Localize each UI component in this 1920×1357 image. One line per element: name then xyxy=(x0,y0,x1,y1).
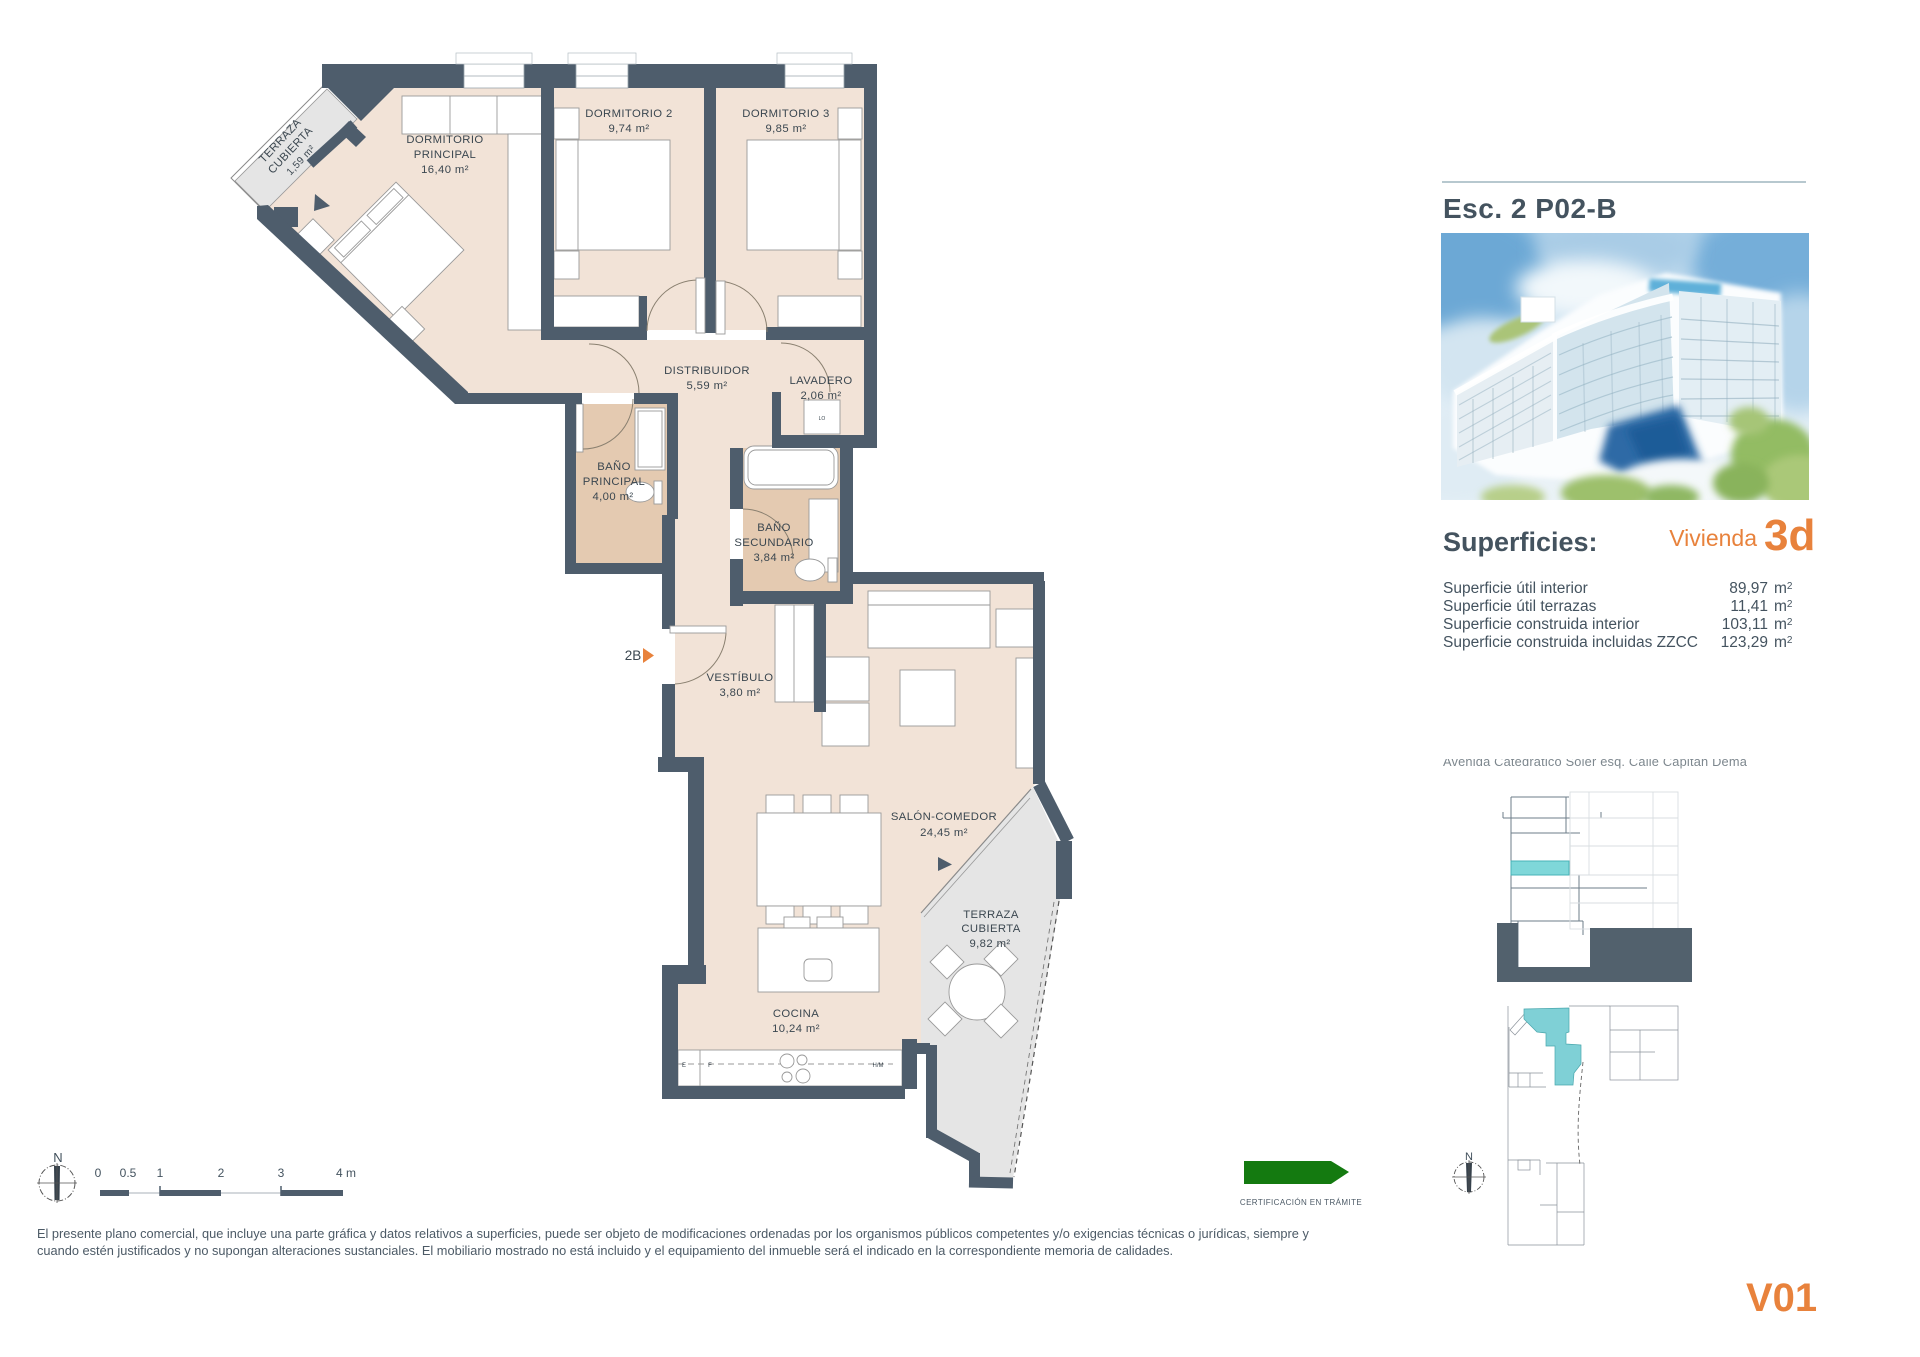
svg-text:TERRAZA: TERRAZA xyxy=(963,909,1019,921)
svg-text:9,74 m²: 9,74 m² xyxy=(608,123,649,135)
svg-text:H/M: H/M xyxy=(873,1063,884,1069)
svg-text:DISTRIBUIDOR: DISTRIBUIDOR xyxy=(664,365,750,377)
svg-text:Superficie construida incluida: Superficie construida incluidas ZZCC xyxy=(1443,634,1698,651)
svg-text:4,00 m²: 4,00 m² xyxy=(592,491,633,503)
svg-text:2B: 2B xyxy=(625,648,642,663)
svg-text:F: F xyxy=(708,1063,712,1069)
svg-text:DORMITORIO: DORMITORIO xyxy=(406,134,483,146)
svg-text:Superficie construida interior: Superficie construida interior xyxy=(1443,616,1639,633)
svg-text:BAÑO: BAÑO xyxy=(757,521,791,534)
svg-text:2: 2 xyxy=(218,1166,225,1180)
svg-text:3d: 3d xyxy=(1764,511,1815,560)
svg-text:10,24 m²: 10,24 m² xyxy=(772,1023,820,1035)
svg-text:0.5: 0.5 xyxy=(120,1166,137,1180)
svg-text:3,80 m²: 3,80 m² xyxy=(719,687,760,699)
svg-text:SALÓN-COMEDOR: SALÓN-COMEDOR xyxy=(891,810,997,823)
svg-text:DORMITORIO 3: DORMITORIO 3 xyxy=(742,108,829,120)
svg-text:PRINCIPAL: PRINCIPAL xyxy=(414,149,476,161)
svg-text:89,97: 89,97 xyxy=(1729,580,1768,597)
svg-text:11,41: 11,41 xyxy=(1730,598,1768,615)
svg-text:16,40 m²: 16,40 m² xyxy=(421,164,469,176)
svg-text:El presente plano comercial, q: El presente plano comercial, que incluye… xyxy=(37,1226,1309,1241)
svg-text:2,06 m²: 2,06 m² xyxy=(800,390,841,402)
svg-text:9,85 m²: 9,85 m² xyxy=(765,123,806,135)
svg-text:Superficie útil interior: Superficie útil interior xyxy=(1443,580,1588,597)
svg-text:VESTÍBULO: VESTÍBULO xyxy=(706,671,773,684)
svg-text:24,45 m²: 24,45 m² xyxy=(920,827,968,839)
svg-text:COCINA: COCINA xyxy=(773,1008,819,1020)
svg-text:Vivienda: Vivienda xyxy=(1669,525,1757,551)
svg-text:V01: V01 xyxy=(1746,1276,1817,1320)
svg-text:Esc. 2 P02-B: Esc. 2 P02-B xyxy=(1443,193,1617,224)
svg-text:LO: LO xyxy=(819,416,826,422)
svg-text:N: N xyxy=(53,1150,62,1165)
svg-text:Superficies:: Superficies: xyxy=(1443,527,1598,557)
svg-text:PRINCIPAL: PRINCIPAL xyxy=(583,476,645,488)
svg-text:123,29: 123,29 xyxy=(1721,634,1768,651)
svg-text:103,11: 103,11 xyxy=(1722,616,1768,633)
svg-text:BAÑO: BAÑO xyxy=(597,460,631,473)
svg-text:3,84 m²: 3,84 m² xyxy=(753,552,794,564)
svg-text:LAVADERO: LAVADERO xyxy=(789,375,852,387)
svg-text:Superficie útil terrazas: Superficie útil terrazas xyxy=(1443,598,1597,615)
svg-text:DORMITORIO 2: DORMITORIO 2 xyxy=(585,108,672,120)
svg-text:SECUNDARIO: SECUNDARIO xyxy=(734,537,813,549)
svg-text:5,59 m²: 5,59 m² xyxy=(686,380,727,392)
svg-text:CUBIERTA: CUBIERTA xyxy=(961,923,1020,935)
svg-text:3: 3 xyxy=(278,1166,285,1180)
svg-text:cuando estén justificados y no: cuando estén justificados y no supongan … xyxy=(37,1243,1173,1258)
svg-text:E: E xyxy=(682,1063,686,1069)
svg-text:0: 0 xyxy=(95,1166,102,1180)
svg-text:CERTIFICACIÓN EN TRÁMITE: CERTIFICACIÓN EN TRÁMITE xyxy=(1240,1198,1362,1207)
svg-text:9,82 m²: 9,82 m² xyxy=(969,938,1010,950)
svg-text:4 m: 4 m xyxy=(336,1166,356,1180)
svg-text:1: 1 xyxy=(157,1166,164,1180)
